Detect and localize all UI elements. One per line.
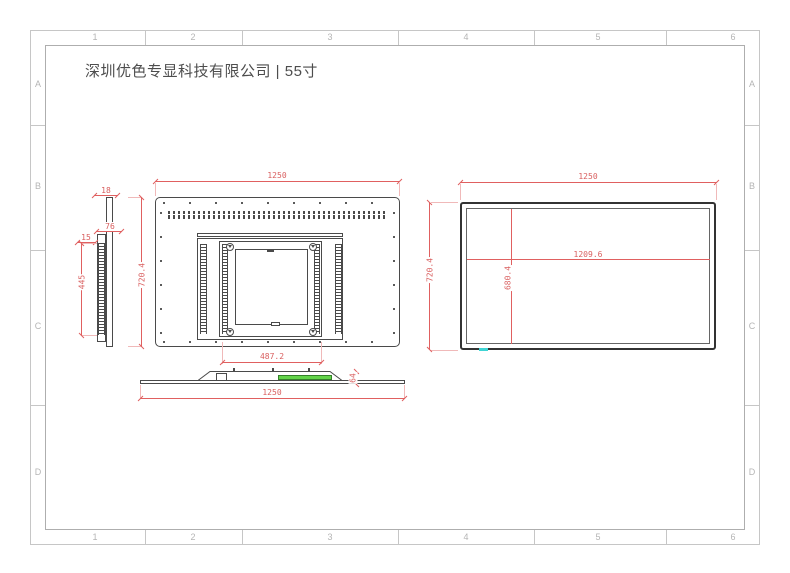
handle-bar [197,233,343,237]
keyhole-slot [309,328,317,336]
extension-line [155,183,156,196]
grid-row-label: C [30,319,46,334]
dim-label-back-width: 1250 [577,172,598,181]
grid-col-label: 2 [185,30,201,45]
grid-col-label: 1 [87,30,103,45]
grid-tick [666,530,667,545]
dim-line-side-thickness [94,195,118,196]
extension-line [128,346,141,347]
dim-label-front-width: 1250 [266,171,287,180]
extension-line [128,197,141,198]
grid-tick [534,30,535,45]
dim-label-active-width: 1209.6 [573,250,604,259]
extension-line [460,184,461,200]
dim-label-active-height: 680.4 [504,265,513,291]
dim-label-bottom-width: 1250 [261,388,282,397]
extension-line [431,350,458,351]
screw-dots-top [163,202,393,204]
bottom-view-highlight-bar [278,375,332,380]
grid-col-label: 3 [322,30,338,45]
dim-line-front-width [155,181,400,182]
grid-tick [534,530,535,545]
grid-row-label: D [30,465,46,480]
dim-label-front-height: 720.4 [138,262,147,288]
page-title: 深圳优色专显科技有限公司 | 55寸 [85,60,318,81]
dim-label-plate-width: 487.2 [259,352,285,361]
dim-label-side-thickness: 18 [100,186,112,195]
grid-tick [30,125,45,126]
connector-mark [271,322,280,326]
mount-tab [272,368,274,371]
extension-line [716,184,717,200]
grid-col-label: 6 [725,530,741,545]
grid-tick [745,125,760,126]
grid-tick [145,30,146,45]
grid-col-label: 4 [458,30,474,45]
grid-col-label: 6 [725,30,741,45]
grid-tick [242,530,243,545]
grid-tick [30,250,45,251]
screw-dots-bottom [163,341,393,343]
grid-row-label: C [744,319,760,334]
screw-dots-right [393,212,395,334]
grid-row-label: B [744,179,760,194]
vesa-vent-strip [200,244,207,334]
grid-col-label: 2 [185,530,201,545]
keyhole-slot [226,243,234,251]
grid-col-label: 5 [590,30,606,45]
dim-line-back-width [460,182,717,183]
vesa-vent-strip [314,244,320,334]
grid-tick [398,30,399,45]
grid-row-label: A [744,77,760,92]
mount-tab [233,368,235,371]
grid-tick [242,30,243,45]
speaker-vent-grille [168,211,386,219]
dim-line-side-depth [96,231,122,232]
dim-label-bottom-depth: 64 [349,372,358,384]
extension-line [399,183,400,196]
vesa-vent-strip [222,244,228,334]
dim-label-back-height: 720.4 [426,257,435,283]
bottom-view-port-block [216,373,227,381]
side-view-vent-strip [98,243,105,335]
keyhole-slot [309,243,317,251]
active-area-horizontal-line [467,259,710,260]
grid-col-label: 4 [458,530,474,545]
grid-tick [745,405,760,406]
grid-row-label: B [30,179,46,194]
grid-col-label: 5 [590,530,606,545]
grid-tick [398,530,399,545]
grid-tick [30,405,45,406]
grid-row-label: A [30,77,46,92]
grid-col-label: 3 [322,530,338,545]
touch-sensor-mark [479,348,488,351]
vesa-vent-strip [335,244,342,334]
grid-tick [145,530,146,545]
keyhole-slot [226,328,234,336]
dim-line-plate-width [222,362,322,363]
vesa-opening [235,249,308,325]
label-mark [267,250,274,252]
dim-label-side-depth: 76 [104,222,116,231]
dim-label-side-step: 15 [80,233,92,242]
extension-line [431,202,458,203]
side-view-panel [106,197,113,347]
grid-col-label: 1 [87,530,103,545]
dim-line-bottom-width [140,398,405,399]
screw-dots-left [160,212,162,334]
dim-label-side-box-height: 445 [78,274,87,290]
grid-row-label: D [744,465,760,480]
drawing-sheet: 1 2 3 4 5 6 1 2 3 4 5 6 A B C D A B C D … [0,0,790,573]
grid-tick [666,30,667,45]
grid-tick [745,250,760,251]
mount-tab [308,368,310,371]
